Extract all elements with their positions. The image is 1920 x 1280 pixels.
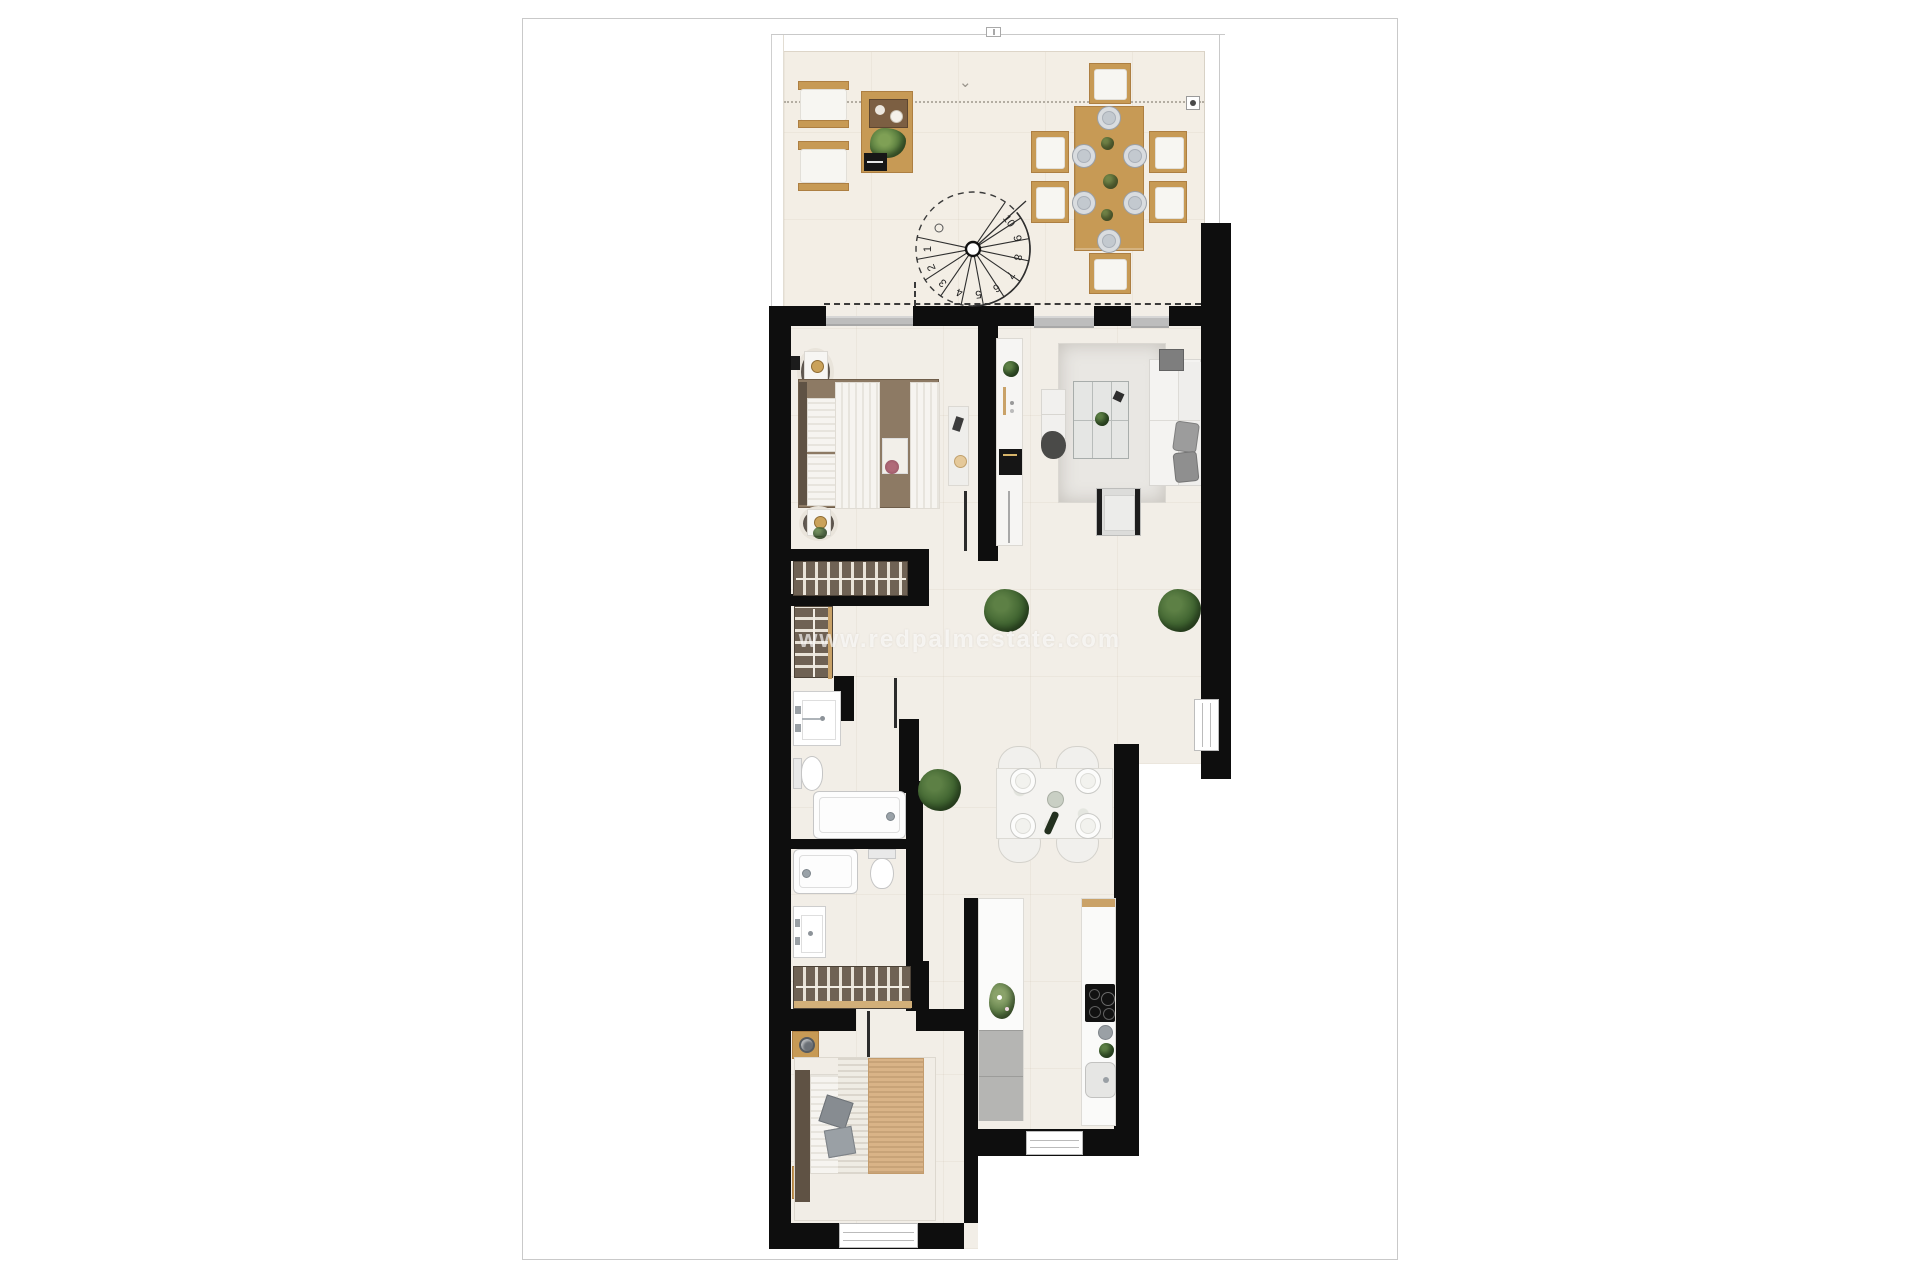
bathroom-sink [793, 906, 826, 958]
wall [916, 1009, 964, 1031]
table-centerpiece [1047, 791, 1064, 808]
dining-chair [1149, 131, 1187, 173]
wall [906, 781, 923, 968]
terrace-fixture-icon [1186, 96, 1200, 110]
wall [791, 839, 906, 849]
tv-console [996, 338, 1023, 546]
kitchen-island [978, 898, 1024, 1121]
sliding-door-sill [826, 316, 913, 326]
place-setting [1072, 144, 1096, 168]
roof-outline-right [1219, 34, 1220, 223]
svg-text:9: 9 [1010, 234, 1023, 243]
svg-text:2: 2 [925, 262, 938, 273]
place-setting [1072, 191, 1096, 215]
dining-chair [1089, 253, 1131, 294]
door-leaf [867, 1011, 870, 1058]
plant [813, 527, 827, 539]
place-setting [1075, 813, 1101, 839]
wardrobe [793, 561, 908, 596]
spiral-staircase-icon: 12345678910 [910, 180, 1050, 320]
shower-tray [793, 849, 858, 894]
svg-text:3: 3 [937, 276, 950, 289]
wall [1094, 306, 1131, 326]
sofa-side-table [1159, 349, 1184, 371]
wall [791, 1009, 856, 1031]
dining-chair [1089, 63, 1131, 104]
lounge-chair [798, 141, 849, 191]
svg-text:5: 5 [975, 287, 983, 300]
coffee-table-glass [1073, 381, 1129, 459]
floorplan-canvas: ⌄ [0, 0, 1920, 1280]
nightstand [792, 1031, 819, 1059]
kitchen-sink [1085, 1062, 1116, 1098]
wall [769, 306, 826, 326]
wardrobe [793, 966, 911, 1009]
table-centerpiece [1101, 137, 1114, 150]
window [1026, 1131, 1083, 1155]
terrace-parapet [771, 34, 784, 306]
door-leaf [894, 678, 897, 728]
lounge-chair [798, 81, 849, 128]
plant [1158, 589, 1201, 632]
floor-cushion [1041, 431, 1066, 459]
floorplan-page: ⌄ [522, 18, 1398, 1260]
bed-double [798, 379, 939, 508]
wall [1114, 744, 1139, 1156]
bathtub [813, 791, 906, 839]
armchair [1096, 488, 1141, 536]
svg-text:6: 6 [991, 281, 1002, 294]
parapet-symbol-icon [986, 27, 1001, 37]
window [1194, 699, 1219, 751]
window [839, 1223, 918, 1248]
place-setting [1097, 106, 1121, 130]
wall [906, 549, 929, 606]
kitchen-counter [1081, 898, 1116, 1126]
wall-item [791, 356, 800, 370]
svg-text:10: 10 [1000, 213, 1017, 230]
plant [918, 769, 961, 811]
table-centerpiece [1103, 174, 1118, 189]
bathroom-sink [793, 691, 841, 746]
wall [978, 326, 998, 561]
cooktop [1085, 984, 1115, 1022]
sofa [1149, 359, 1201, 486]
watermark: www.redpalmestate.com [799, 626, 1122, 654]
place-setting [1010, 813, 1036, 839]
place-setting [1123, 191, 1147, 215]
place-setting [1075, 768, 1101, 794]
wall [769, 306, 791, 1249]
place-setting [1010, 768, 1036, 794]
entry-arrow-icon: ⌄ [959, 73, 972, 91]
door-leaf [964, 491, 967, 551]
terrace-coffee-table [861, 91, 913, 173]
toilet [793, 754, 823, 793]
dining-chair [1031, 131, 1069, 173]
place-setting [1123, 144, 1147, 168]
place-setting [1097, 229, 1121, 253]
svg-text:1: 1 [922, 246, 934, 252]
wall [769, 549, 914, 561]
kitchen-faucet [1098, 1025, 1113, 1040]
bed-double [794, 1057, 936, 1221]
bedroom-bench [948, 406, 969, 486]
wall [964, 898, 978, 1223]
toilet [866, 849, 898, 891]
svg-text:8: 8 [1011, 253, 1024, 261]
wall [1201, 223, 1231, 779]
sliding-door-sill [1131, 316, 1169, 328]
table-centerpiece [1101, 209, 1113, 221]
dining-chair [1149, 181, 1187, 223]
